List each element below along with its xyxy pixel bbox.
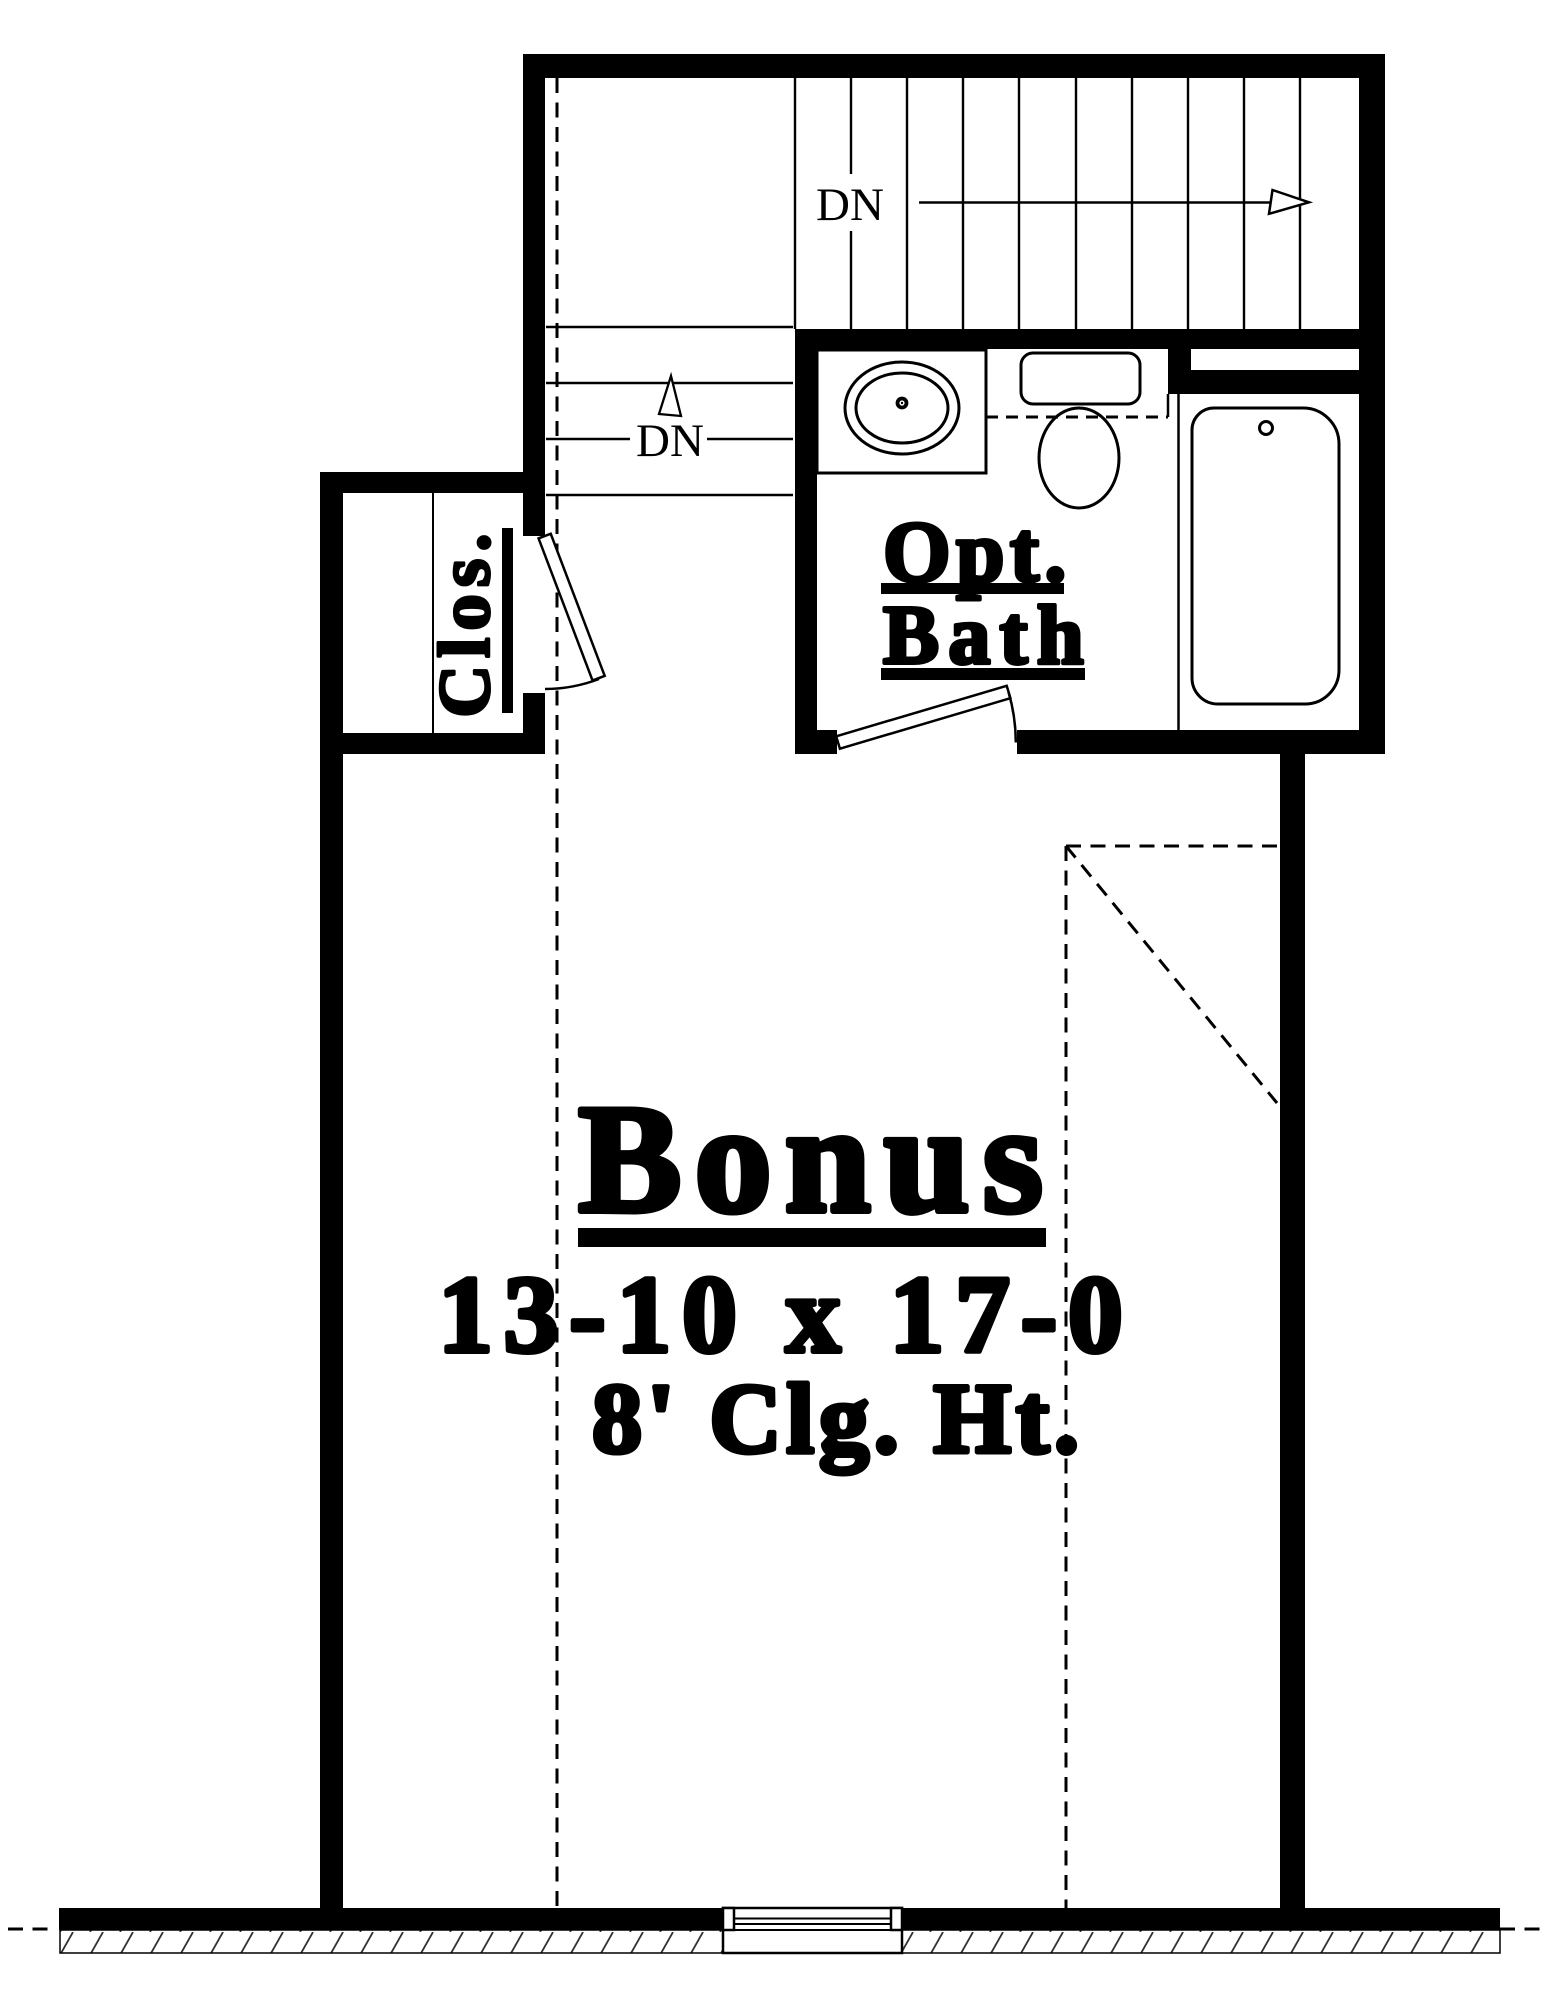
- svg-text:13-10 x 17-0: 13-10 x 17-0: [438, 1254, 1133, 1376]
- svg-text:Clos.: Clos.: [424, 526, 505, 717]
- svg-text:DN: DN: [636, 415, 704, 467]
- svg-text:DN: DN: [816, 179, 884, 231]
- svg-text:8' Clg. Ht.: 8' Clg. Ht.: [592, 1363, 1084, 1474]
- svg-text:Bonus: Bonus: [578, 1073, 1056, 1245]
